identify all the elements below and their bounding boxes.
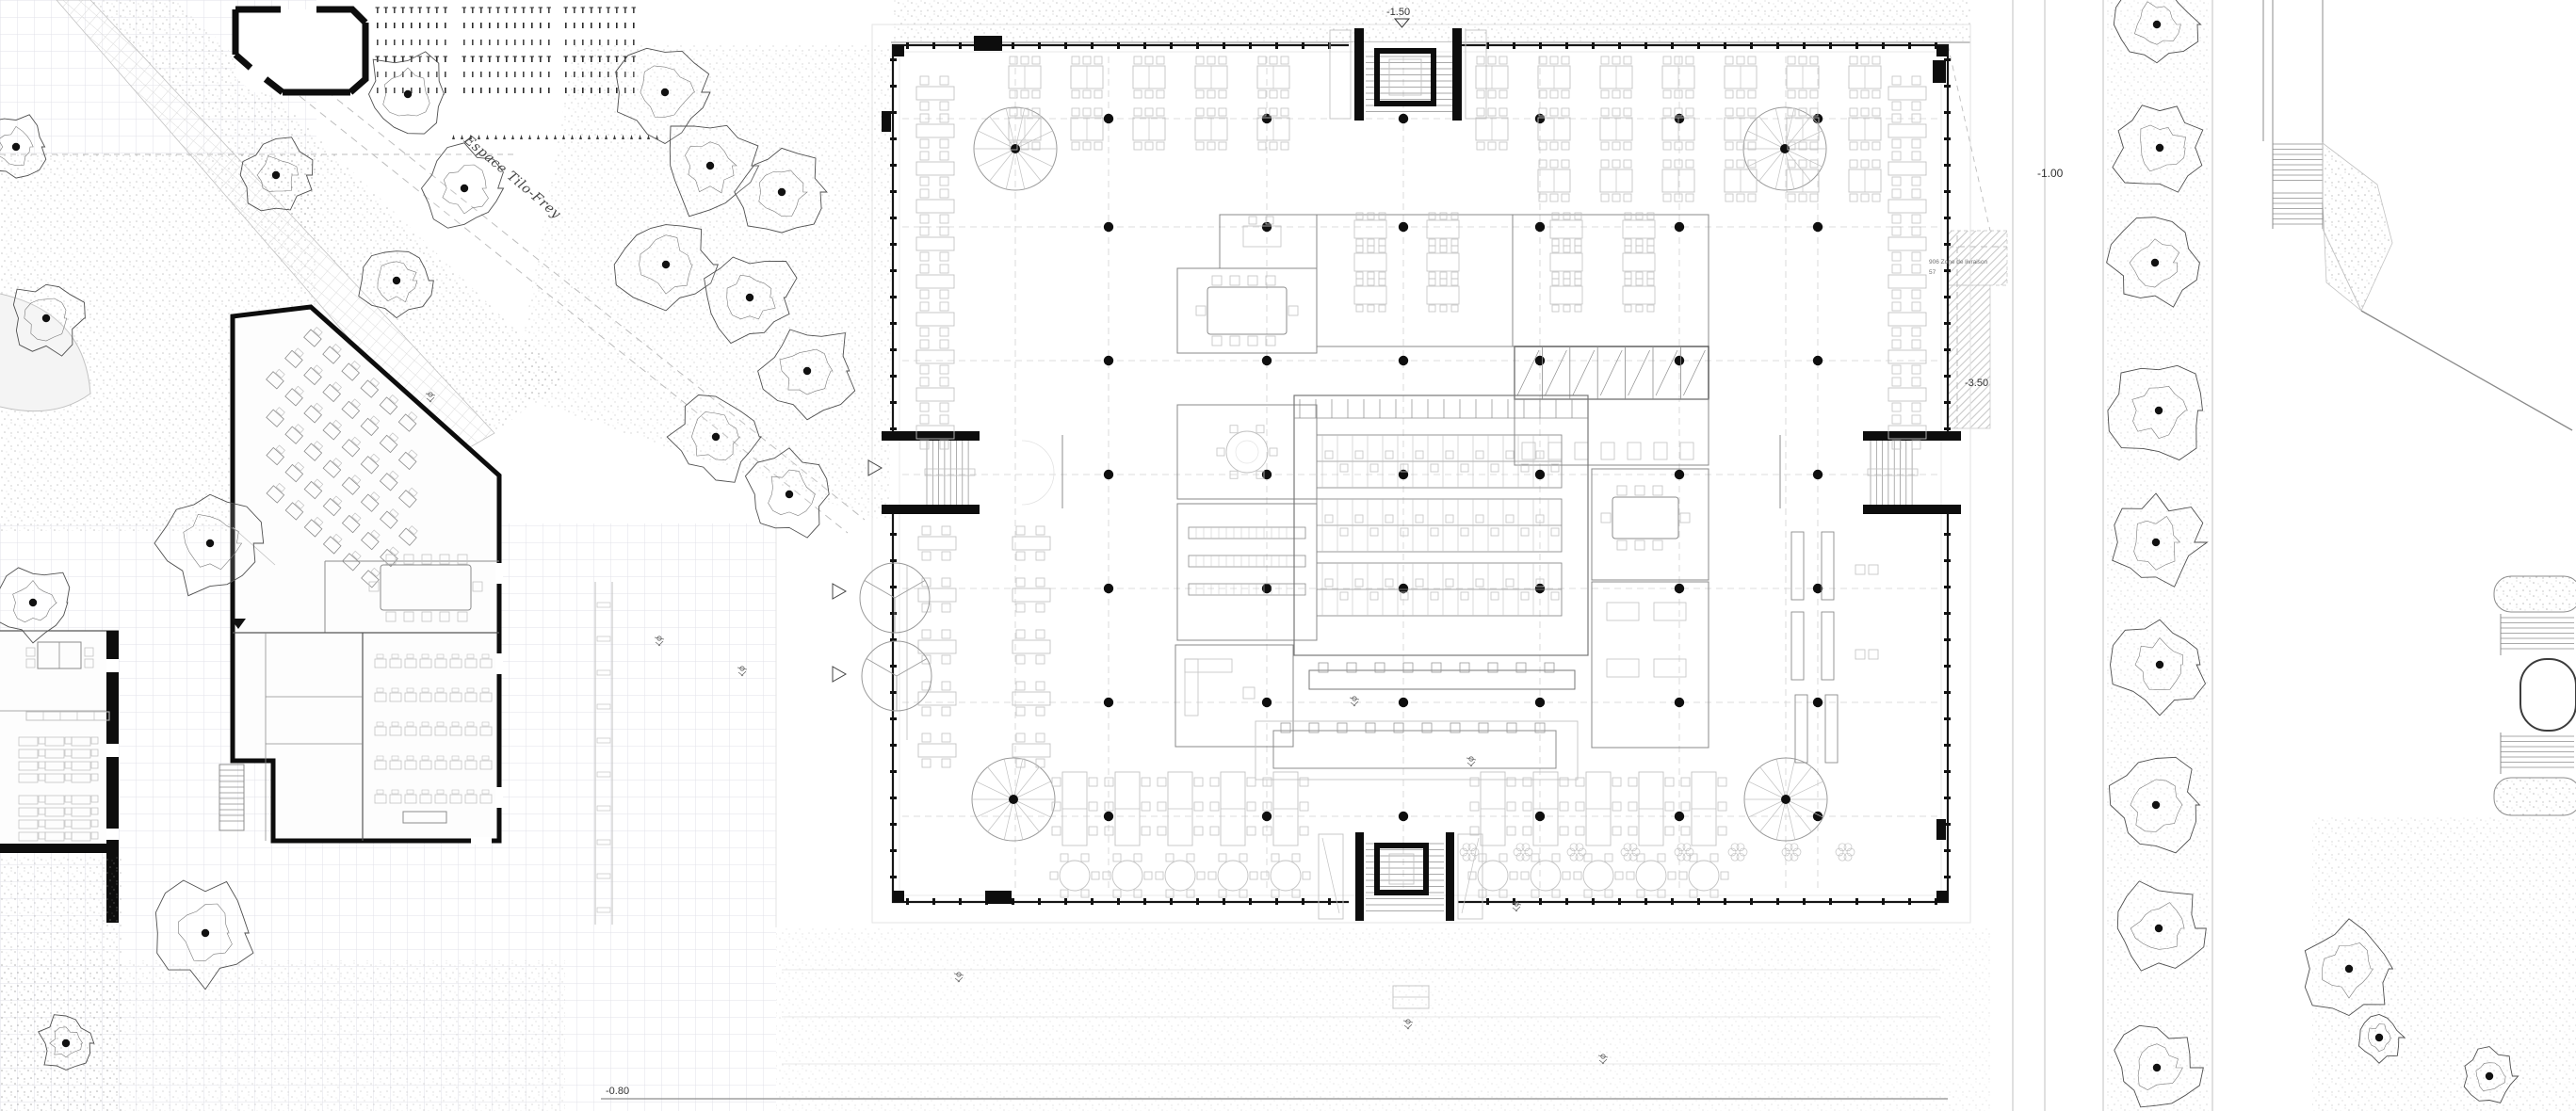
pavilion-building	[235, 9, 365, 92]
site-plan-canvas: Espace Tilo-Frey -1.50 -1.00 -3.50 -0.80…	[0, 0, 2576, 1111]
level-marker-plaza: -0.80	[606, 1086, 629, 1097]
delivery-zone-number: 57	[1929, 269, 1936, 276]
tree	[2108, 365, 2203, 459]
delivery-zone-label: 906 Zone de livraison	[1929, 259, 1988, 266]
level-marker-right: -1.00	[2037, 167, 2064, 180]
level-marker-top: -1.50	[1386, 7, 1410, 18]
level-marker-ramp: -3.50	[1965, 378, 1988, 389]
